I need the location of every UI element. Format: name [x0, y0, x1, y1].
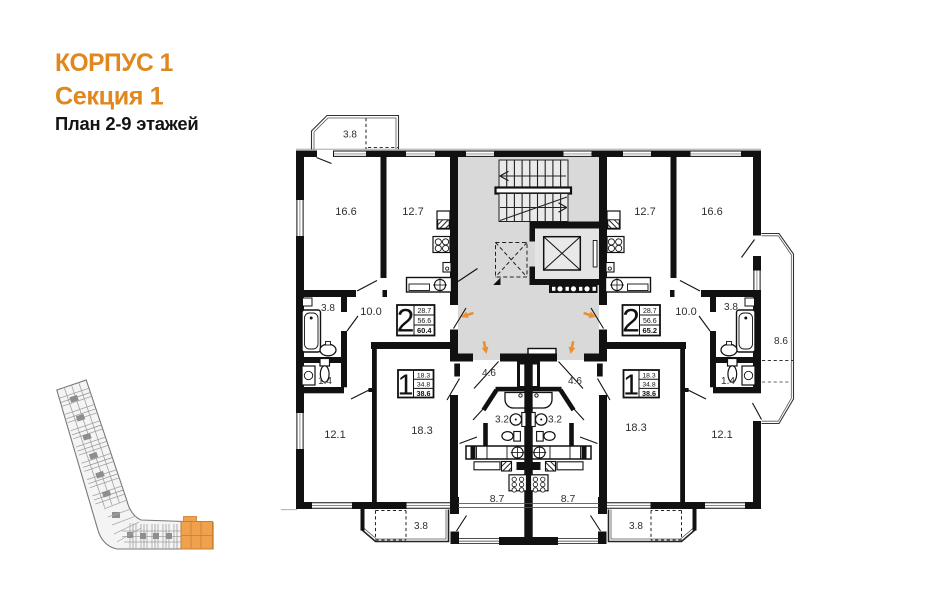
svg-text:1.4: 1.4 — [721, 376, 735, 387]
svg-text:28.7: 28.7 — [643, 308, 657, 315]
svg-text:1: 1 — [398, 370, 414, 402]
svg-text:16.6: 16.6 — [701, 206, 722, 218]
svg-text:34.8: 34.8 — [642, 382, 655, 389]
svg-text:3.8: 3.8 — [629, 521, 643, 532]
svg-text:8.6: 8.6 — [774, 336, 788, 347]
svg-text:1: 1 — [623, 370, 639, 402]
svg-text:10.0: 10.0 — [360, 306, 381, 318]
svg-text:18.3: 18.3 — [625, 422, 646, 434]
svg-text:60.4: 60.4 — [417, 326, 432, 335]
svg-text:Секция 1: Секция 1 — [55, 83, 164, 111]
svg-text:3.8: 3.8 — [343, 130, 357, 141]
svg-text:12.7: 12.7 — [402, 206, 423, 218]
svg-text:10.0: 10.0 — [675, 306, 696, 318]
svg-text:3.8: 3.8 — [321, 303, 335, 314]
svg-text:38.6: 38.6 — [417, 389, 431, 398]
svg-text:56.6: 56.6 — [417, 318, 431, 325]
svg-text:План 2-9 этажей: План 2-9 этажей — [55, 113, 199, 134]
svg-text:65.2: 65.2 — [642, 326, 657, 335]
svg-text:12.7: 12.7 — [634, 206, 655, 218]
svg-text:4.6: 4.6 — [568, 376, 582, 387]
svg-text:3.2: 3.2 — [495, 415, 509, 426]
svg-text:12.1: 12.1 — [324, 429, 345, 441]
svg-text:2: 2 — [397, 303, 415, 339]
svg-text:34.8: 34.8 — [417, 382, 430, 389]
svg-text:12.1: 12.1 — [711, 429, 732, 441]
svg-text:56.6: 56.6 — [643, 318, 657, 325]
svg-text:3.8: 3.8 — [724, 302, 738, 313]
svg-text:4.6: 4.6 — [482, 368, 496, 379]
svg-text:18.3: 18.3 — [642, 372, 655, 379]
svg-text:3.2: 3.2 — [548, 415, 562, 426]
svg-text:38.6: 38.6 — [642, 389, 656, 398]
svg-text:18.3: 18.3 — [417, 372, 430, 379]
svg-text:КОРПУС 1: КОРПУС 1 — [55, 50, 173, 77]
svg-text:8.7: 8.7 — [561, 493, 576, 505]
svg-text:3.8: 3.8 — [414, 521, 428, 532]
svg-text:2: 2 — [622, 303, 640, 339]
svg-text:28.7: 28.7 — [417, 308, 431, 315]
svg-text:18.3: 18.3 — [411, 425, 432, 437]
svg-text:8.7: 8.7 — [490, 493, 505, 505]
svg-text:1.4: 1.4 — [318, 376, 332, 387]
svg-text:16.6: 16.6 — [335, 206, 356, 218]
